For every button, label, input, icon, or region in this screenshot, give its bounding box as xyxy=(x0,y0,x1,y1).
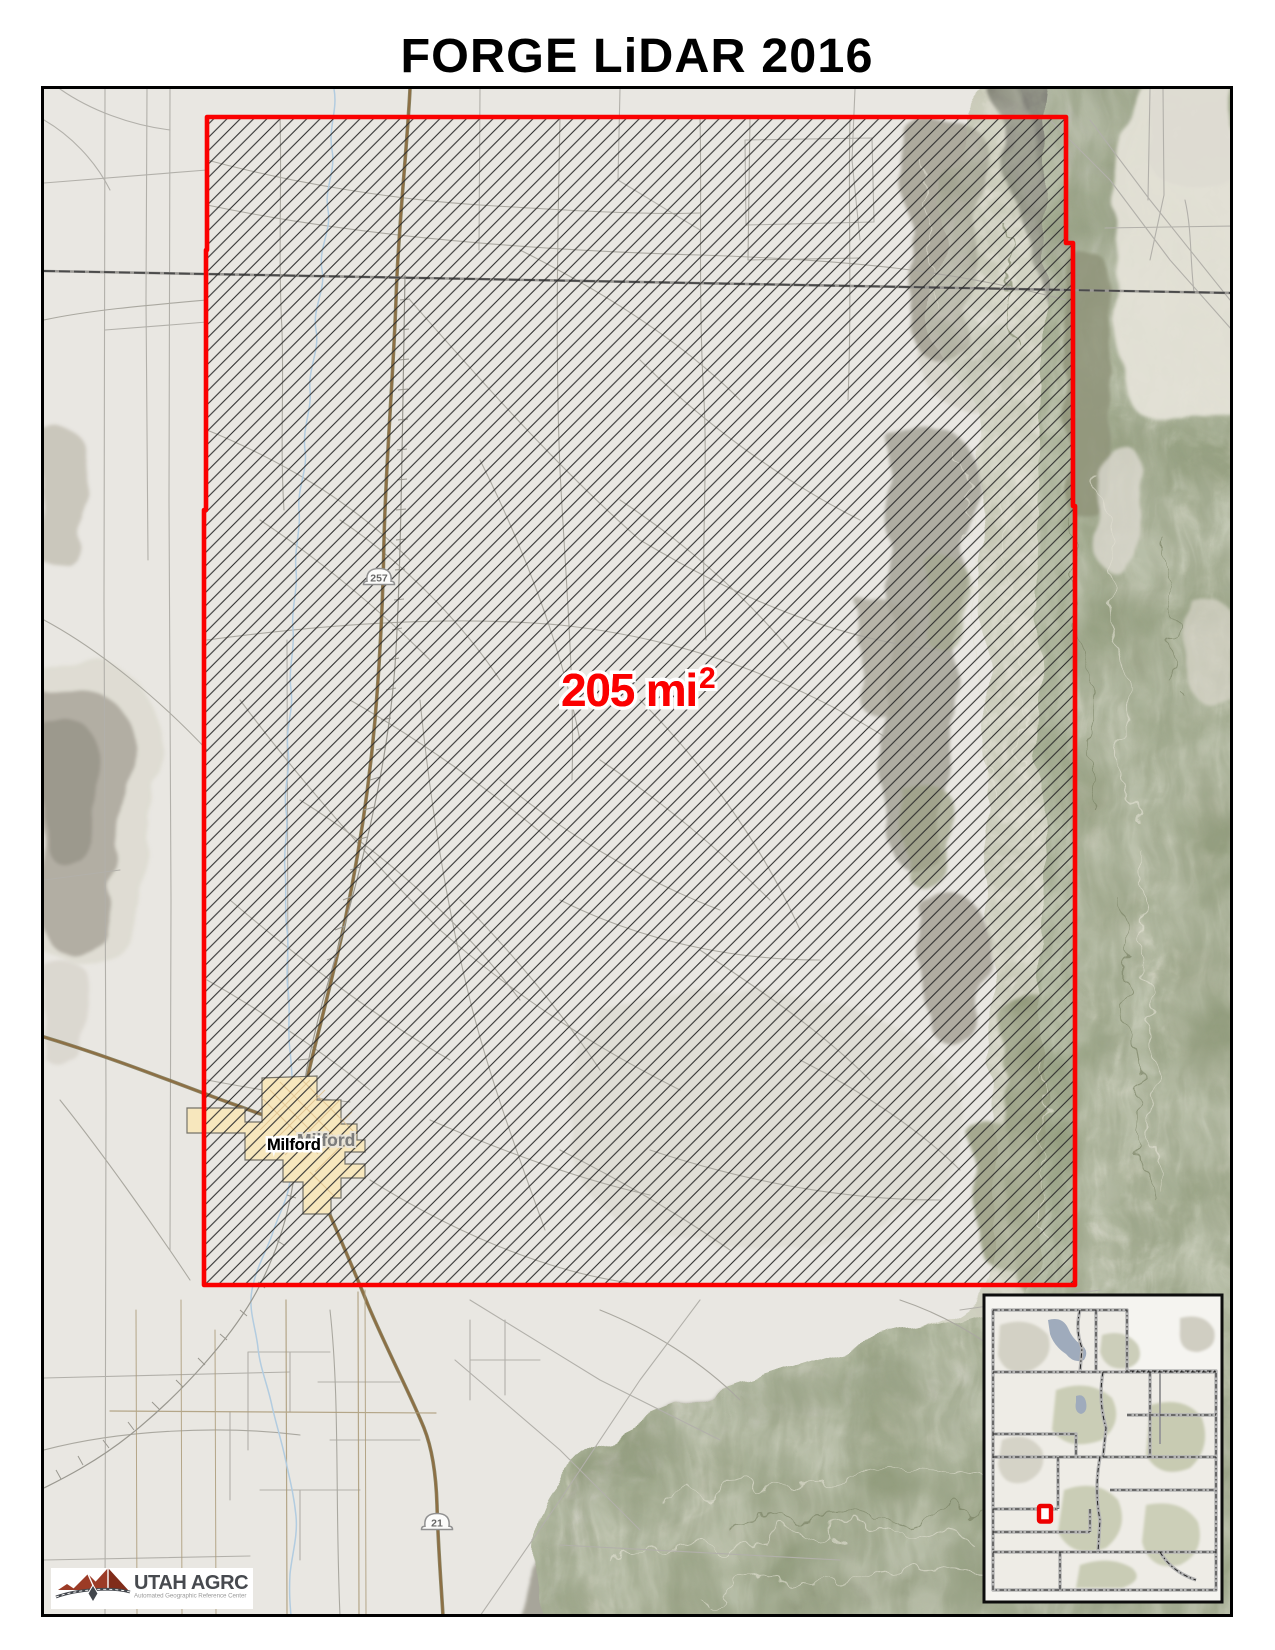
svg-text:FORGE LiDAR 2016: FORGE LiDAR 2016 xyxy=(400,29,873,83)
svg-text:257: 257 xyxy=(370,573,388,585)
svg-text:21: 21 xyxy=(431,1518,443,1530)
svg-text:2: 2 xyxy=(699,662,716,695)
svg-text:UTAH AGRC: UTAH AGRC xyxy=(134,1572,248,1594)
svg-text:205 mi: 205 mi xyxy=(561,664,697,716)
svg-text:Automated Geographic Reference: Automated Geographic Reference Center xyxy=(134,1593,246,1600)
svg-text:Milford: Milford xyxy=(267,1136,321,1154)
